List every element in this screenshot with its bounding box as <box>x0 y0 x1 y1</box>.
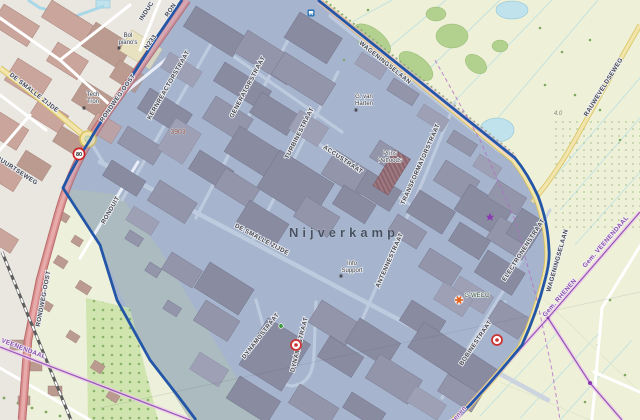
poi-info-support-line2: Support <box>341 268 362 274</box>
poi-tech-tron-line1: Tech <box>87 92 100 98</box>
red-roundel-marker[interactable] <box>492 335 502 345</box>
poi-tech-tron-line2: Tron <box>87 99 99 105</box>
poi-bol-pianos-line1: Bol <box>124 33 133 39</box>
poi-g-van-harten-line1: G. van <box>355 94 373 100</box>
parcel-number: 3903 <box>170 129 186 136</box>
heath-texture <box>552 120 640 232</box>
poi-prins-petfoods-line1: Prins <box>383 151 397 157</box>
poi-prins-petfoods-line2: Petfoods <box>378 158 402 164</box>
red-roundel-marker[interactable] <box>291 340 301 350</box>
map-canvas[interactable]: DE SMALLE ZIJDE RONDWEG-OOST N233 RON RO… <box>0 0 640 420</box>
poi-g-weco: G-WECO <box>464 293 490 299</box>
spot-elevation: 4.0 <box>554 111 563 117</box>
map-screenshot: DE SMALLE ZIJDE RONDWEG-OOST N233 RON RO… <box>0 0 640 420</box>
poi-g-van-harten-line2: Harten <box>355 101 373 107</box>
poi-info-support-line1: Info <box>347 261 358 267</box>
speed-limit-sign: 80 <box>73 148 84 159</box>
green-dot-marker[interactable] <box>279 324 284 329</box>
orange-asterisk-marker[interactable] <box>454 295 463 304</box>
poi-bol-pianos-line2: piano's <box>119 40 138 46</box>
area-label-nijverkamp: Nijverkamp <box>289 225 399 240</box>
bus-stop-icon[interactable] <box>308 10 315 17</box>
svg-text:80: 80 <box>76 152 82 158</box>
